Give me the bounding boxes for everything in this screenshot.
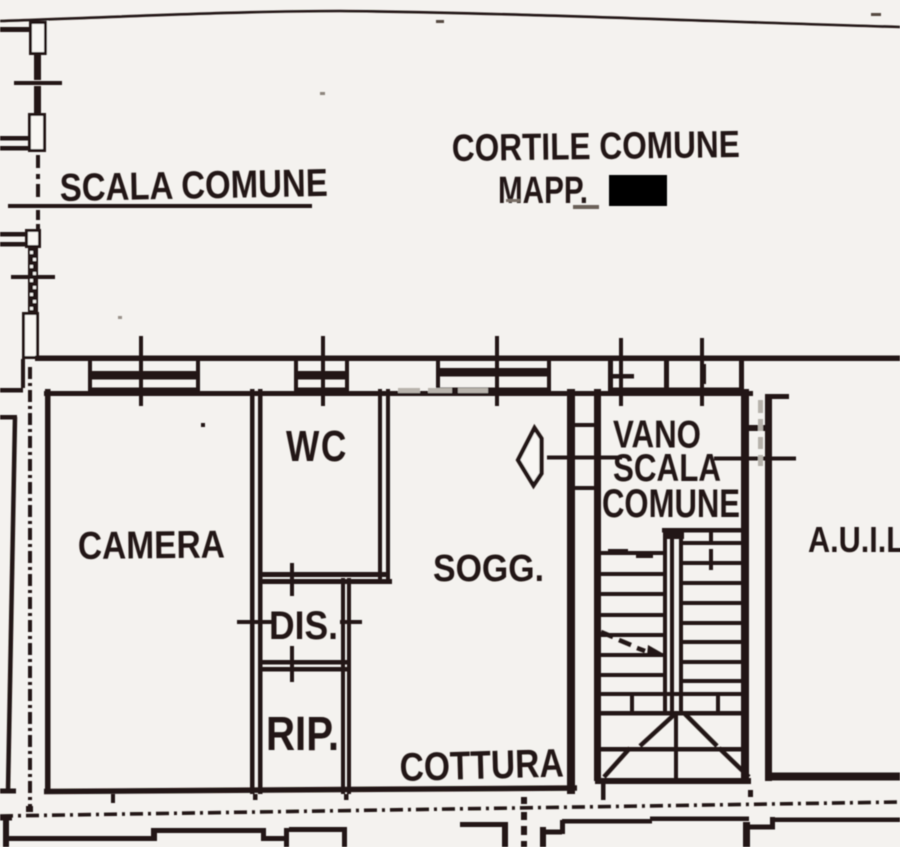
svg-text:SOGG.: SOGG. — [433, 548, 544, 590]
svg-text:SCALA COMUNE: SCALA COMUNE — [59, 162, 328, 210]
svg-text:WC: WC — [286, 422, 348, 471]
svg-text:CAMERA: CAMERA — [78, 523, 225, 568]
svg-text:RIP.: RIP. — [266, 708, 339, 761]
svg-text:A.U.I.L: A.U.I.L — [808, 519, 900, 560]
svg-text:CORTILE COMUNE: CORTILE COMUNE — [452, 124, 741, 170]
svg-text:COTTURA: COTTURA — [399, 741, 564, 790]
svg-text:DIS.: DIS. — [269, 604, 338, 648]
svg-text:COMUNE: COMUNE — [602, 482, 740, 526]
